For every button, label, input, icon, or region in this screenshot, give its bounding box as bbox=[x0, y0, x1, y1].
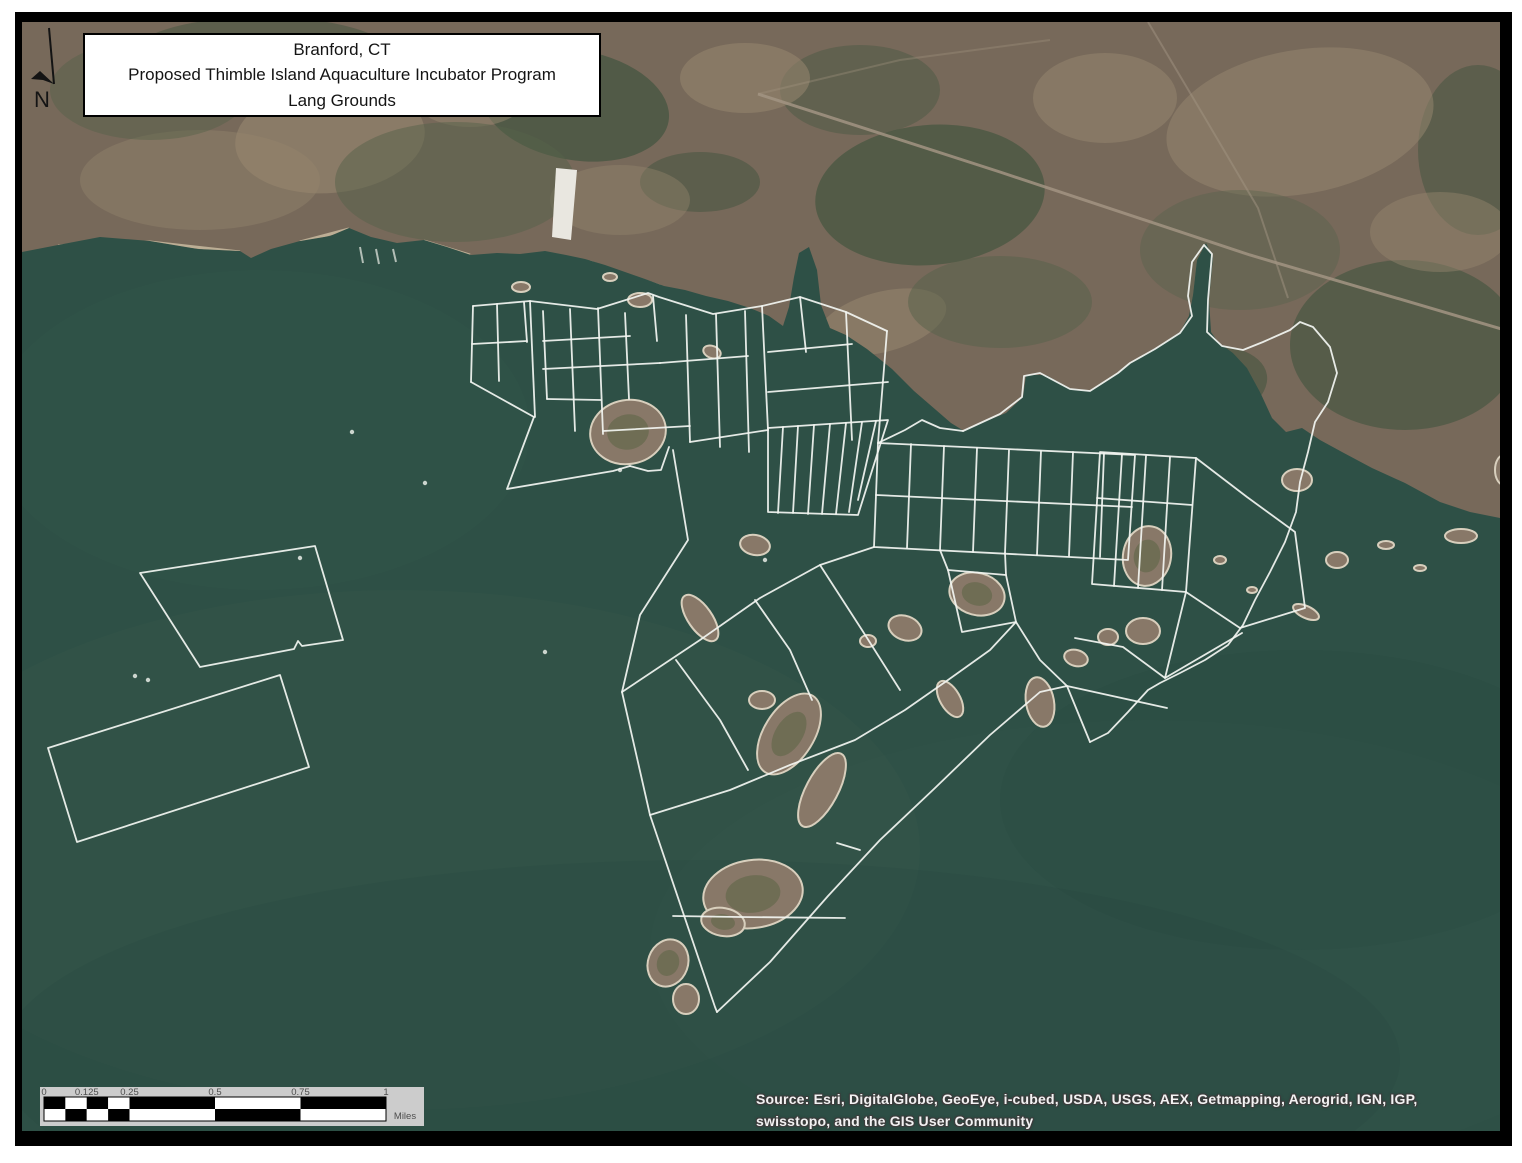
attribution-line-2: swisstopo, and the GIS User Community bbox=[756, 1111, 1508, 1133]
island bbox=[1126, 618, 1160, 644]
island bbox=[603, 273, 617, 281]
island bbox=[1326, 552, 1348, 568]
island bbox=[1247, 587, 1257, 593]
island bbox=[1378, 541, 1394, 549]
scale-tick-label: 1 bbox=[383, 1087, 388, 1098]
island bbox=[1445, 529, 1477, 543]
boat-speck bbox=[133, 674, 137, 678]
boat-speck bbox=[146, 678, 150, 682]
attribution-line-1: Source: Esri, DigitalGlobe, GeoEye, i-cu… bbox=[756, 1089, 1508, 1111]
island bbox=[673, 984, 699, 1014]
boat-speck bbox=[298, 556, 302, 560]
boat-speck bbox=[423, 481, 427, 485]
scale-unit-label: Miles bbox=[394, 1111, 416, 1122]
title-line-city: Branford, CT bbox=[293, 37, 390, 63]
title-line-grounds: Lang Grounds bbox=[288, 88, 396, 114]
north-label: N bbox=[34, 87, 50, 112]
island bbox=[512, 282, 530, 292]
map-title-box: Branford, CT Proposed Thimble Island Aqu… bbox=[83, 33, 601, 117]
scale-tick-label: 0.125 bbox=[75, 1087, 99, 1098]
island bbox=[1414, 565, 1426, 571]
map-document: { "title": { "lines": [ "Branford, CT", … bbox=[0, 0, 1522, 1163]
parcel-boundary bbox=[1005, 553, 1006, 575]
source-attribution: Source: Esri, DigitalGlobe, GeoEye, i-cu… bbox=[756, 1089, 1508, 1132]
island bbox=[1282, 469, 1312, 491]
boat-speck bbox=[763, 558, 767, 562]
scale-bar: 00.1250.250.50.751Miles bbox=[40, 1087, 424, 1126]
island bbox=[749, 691, 775, 709]
parcel-boundary bbox=[547, 399, 601, 400]
scale-tick-label: 0.5 bbox=[208, 1087, 221, 1098]
island bbox=[1214, 556, 1226, 564]
scale-tick-label: 0.75 bbox=[291, 1087, 310, 1098]
boat-speck bbox=[350, 430, 354, 434]
title-line-program: Proposed Thimble Island Aquaculture Incu… bbox=[128, 62, 556, 88]
boat-speck bbox=[543, 650, 547, 654]
map-image: N00.1250.250.50.751Miles bbox=[0, 17, 1522, 1163]
scale-tick-label: 0.25 bbox=[120, 1087, 139, 1098]
scale-tick-label: 0 bbox=[41, 1087, 46, 1098]
map-canvas: N00.1250.250.50.751Miles bbox=[0, 0, 1522, 1163]
